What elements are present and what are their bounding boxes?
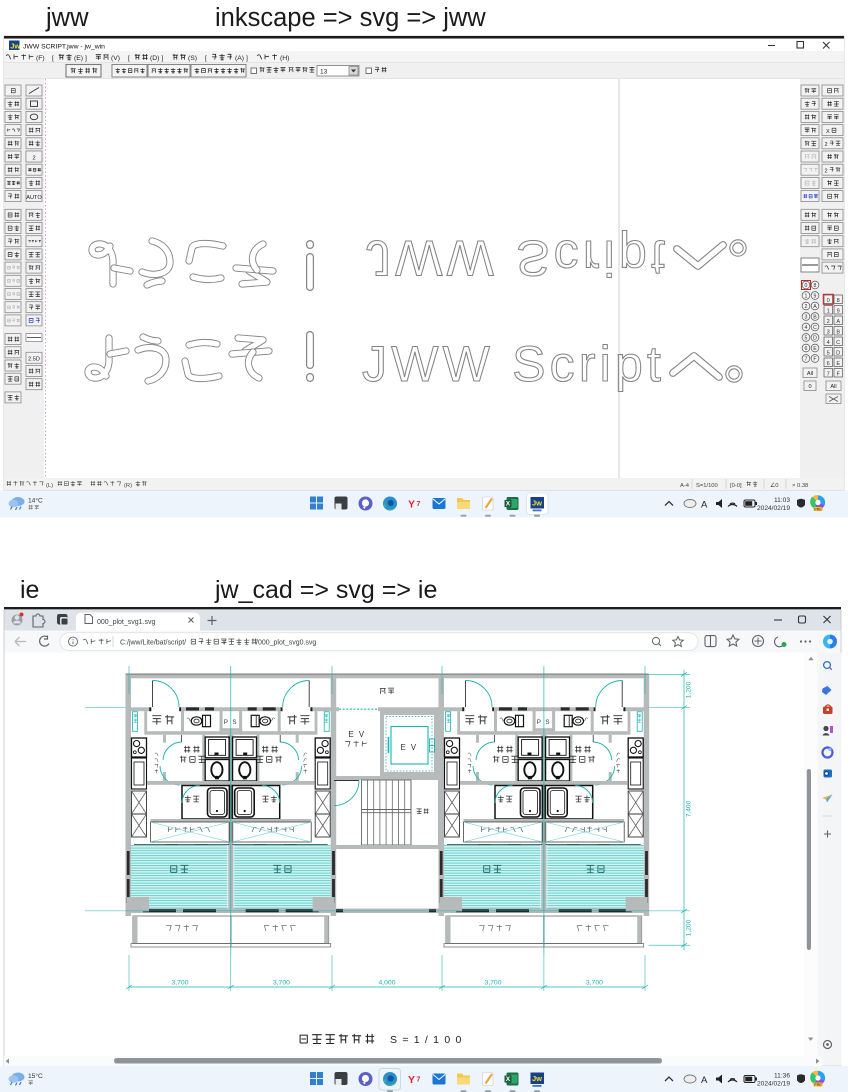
svg-text:E V: E V bbox=[348, 730, 365, 739]
svg-text:A: A bbox=[701, 1075, 708, 1086]
svg-text:AUTO: AUTO bbox=[26, 195, 42, 201]
svg-text:2: 2 bbox=[825, 169, 828, 175]
svg-text:A: A bbox=[813, 304, 817, 310]
svg-text:Jw: Jw bbox=[10, 41, 20, 50]
svg-text:9: 9 bbox=[814, 294, 817, 300]
svg-text:(H): (H) bbox=[280, 55, 289, 62]
svg-text:/: / bbox=[224, 639, 226, 646]
svg-text:[: [ bbox=[128, 55, 130, 62]
svg-text:∠0: ∠0 bbox=[770, 482, 778, 489]
svg-text:2: 2 bbox=[32, 155, 35, 161]
svg-text:4: 4 bbox=[805, 325, 808, 331]
svg-text:8: 8 bbox=[837, 298, 840, 304]
svg-text:6: 6 bbox=[827, 361, 830, 367]
svg-text:(V): (V) bbox=[111, 55, 120, 62]
svg-text:2: 2 bbox=[827, 319, 830, 325]
svg-text:F: F bbox=[813, 357, 816, 363]
svg-text:11:03: 11:03 bbox=[774, 497, 790, 504]
svg-text:3,700: 3,700 bbox=[586, 980, 603, 987]
svg-text:3,700: 3,700 bbox=[171, 980, 188, 987]
svg-text:Y: Y bbox=[408, 1074, 415, 1086]
svg-text:(E) ]: (E) ] bbox=[74, 55, 87, 62]
svg-text:JWW Script: JWW Script bbox=[362, 336, 665, 392]
svg-text:jww: jww bbox=[45, 4, 89, 32]
svg-text:[: [ bbox=[52, 55, 54, 62]
svg-text:X: X bbox=[506, 1076, 511, 1083]
svg-text:jw_cad => svg => ie: jw_cad => svg => ie bbox=[214, 576, 437, 604]
svg-text:14°C: 14°C bbox=[28, 497, 43, 505]
svg-text:7,400: 7,400 bbox=[686, 800, 693, 817]
svg-text:A: A bbox=[701, 500, 708, 511]
svg-text:2.5D: 2.5D bbox=[28, 357, 40, 363]
svg-text:Jw: Jw bbox=[532, 499, 542, 508]
svg-text:0: 0 bbox=[805, 283, 808, 289]
svg-text:Jw: Jw bbox=[532, 1074, 542, 1083]
svg-text:/000_plot_svg0.svg: /000_plot_svg0.svg bbox=[256, 639, 316, 646]
svg-text:JWW Script: JWW Script bbox=[366, 230, 669, 286]
svg-text:6: 6 bbox=[805, 346, 808, 352]
svg-text:X: X bbox=[826, 129, 830, 135]
svg-text:(D) ]: (D) ] bbox=[150, 55, 163, 62]
svg-text:D: D bbox=[813, 336, 817, 342]
svg-text:S=1/100: S=1/100 bbox=[696, 483, 718, 489]
svg-text:(R): (R) bbox=[124, 483, 132, 489]
svg-text:1: 1 bbox=[827, 308, 830, 314]
svg-text:C: C bbox=[813, 325, 817, 331]
svg-text:000_plot_svg1.svg: 000_plot_svg1.svg bbox=[97, 619, 155, 626]
svg-text:D: D bbox=[836, 350, 840, 356]
svg-text:[: [ bbox=[205, 55, 207, 62]
svg-text:1,200: 1,200 bbox=[686, 919, 693, 936]
svg-text:0: 0 bbox=[808, 384, 811, 390]
svg-text:C: C bbox=[836, 340, 840, 346]
svg-text:Y: Y bbox=[408, 499, 415, 511]
svg-text:7: 7 bbox=[805, 357, 808, 363]
svg-text:(L): (L) bbox=[46, 483, 53, 489]
svg-text:1: 1 bbox=[805, 294, 808, 300]
svg-text:3: 3 bbox=[827, 329, 830, 335]
svg-text:3,700: 3,700 bbox=[484, 980, 501, 987]
svg-text:(S): (S) bbox=[188, 55, 197, 62]
svg-text:A-4: A-4 bbox=[680, 483, 690, 489]
svg-text:3: 3 bbox=[805, 315, 808, 321]
svg-text:2: 2 bbox=[825, 142, 828, 148]
svg-text:(F): (F) bbox=[36, 55, 45, 62]
svg-text:PRE: PRE bbox=[814, 1083, 822, 1087]
svg-text:7: 7 bbox=[417, 501, 421, 508]
svg-text:5: 5 bbox=[805, 336, 808, 342]
svg-text:2024/02/19: 2024/02/19 bbox=[757, 505, 790, 512]
svg-text:A: A bbox=[836, 319, 840, 325]
svg-text:ie: ie bbox=[20, 576, 39, 604]
svg-text:E: E bbox=[813, 346, 817, 352]
svg-text:1,200: 1,200 bbox=[686, 681, 693, 698]
svg-text:3,700: 3,700 bbox=[273, 980, 290, 987]
svg-text:11:36: 11:36 bbox=[774, 1073, 790, 1080]
svg-text:4,000: 4,000 bbox=[378, 980, 395, 987]
svg-text:E V: E V bbox=[400, 743, 417, 752]
svg-text:8: 8 bbox=[814, 283, 817, 289]
svg-text:All: All bbox=[830, 384, 836, 390]
svg-text:15°C: 15°C bbox=[28, 1072, 43, 1080]
svg-text:2024/02/19: 2024/02/19 bbox=[757, 1081, 790, 1088]
svg-text:S = 1 / 1 0 0: S = 1 / 1 0 0 bbox=[390, 1034, 463, 1046]
svg-text:PRE: PRE bbox=[814, 507, 822, 511]
svg-text:All: All bbox=[807, 371, 813, 377]
svg-text:B: B bbox=[836, 329, 840, 335]
svg-text:5: 5 bbox=[827, 350, 830, 356]
svg-text:B: B bbox=[813, 315, 817, 321]
svg-text:7: 7 bbox=[417, 1077, 421, 1084]
svg-text:[0-0]: [0-0] bbox=[730, 483, 742, 489]
svg-text:JWW SCRIPT.jww - jw_win: JWW SCRIPT.jww - jw_win bbox=[23, 43, 105, 50]
svg-text:13: 13 bbox=[320, 69, 328, 76]
svg-text:E: E bbox=[836, 361, 840, 367]
svg-text:4: 4 bbox=[827, 340, 830, 346]
svg-text:× 0.38: × 0.38 bbox=[792, 483, 808, 489]
svg-text:(A) ]: (A) ] bbox=[235, 55, 248, 62]
svg-text:9: 9 bbox=[837, 308, 840, 314]
svg-text:F: F bbox=[836, 371, 840, 377]
svg-text:X: X bbox=[506, 501, 511, 508]
svg-text:inkscape => svg => jww: inkscape => svg => jww bbox=[215, 4, 486, 32]
svg-text:7: 7 bbox=[827, 371, 830, 377]
svg-text:0: 0 bbox=[827, 298, 830, 304]
svg-text:C:/jww/Lite/bat/script/: C:/jww/Lite/bat/script/ bbox=[120, 639, 186, 646]
svg-text:2: 2 bbox=[805, 304, 808, 310]
